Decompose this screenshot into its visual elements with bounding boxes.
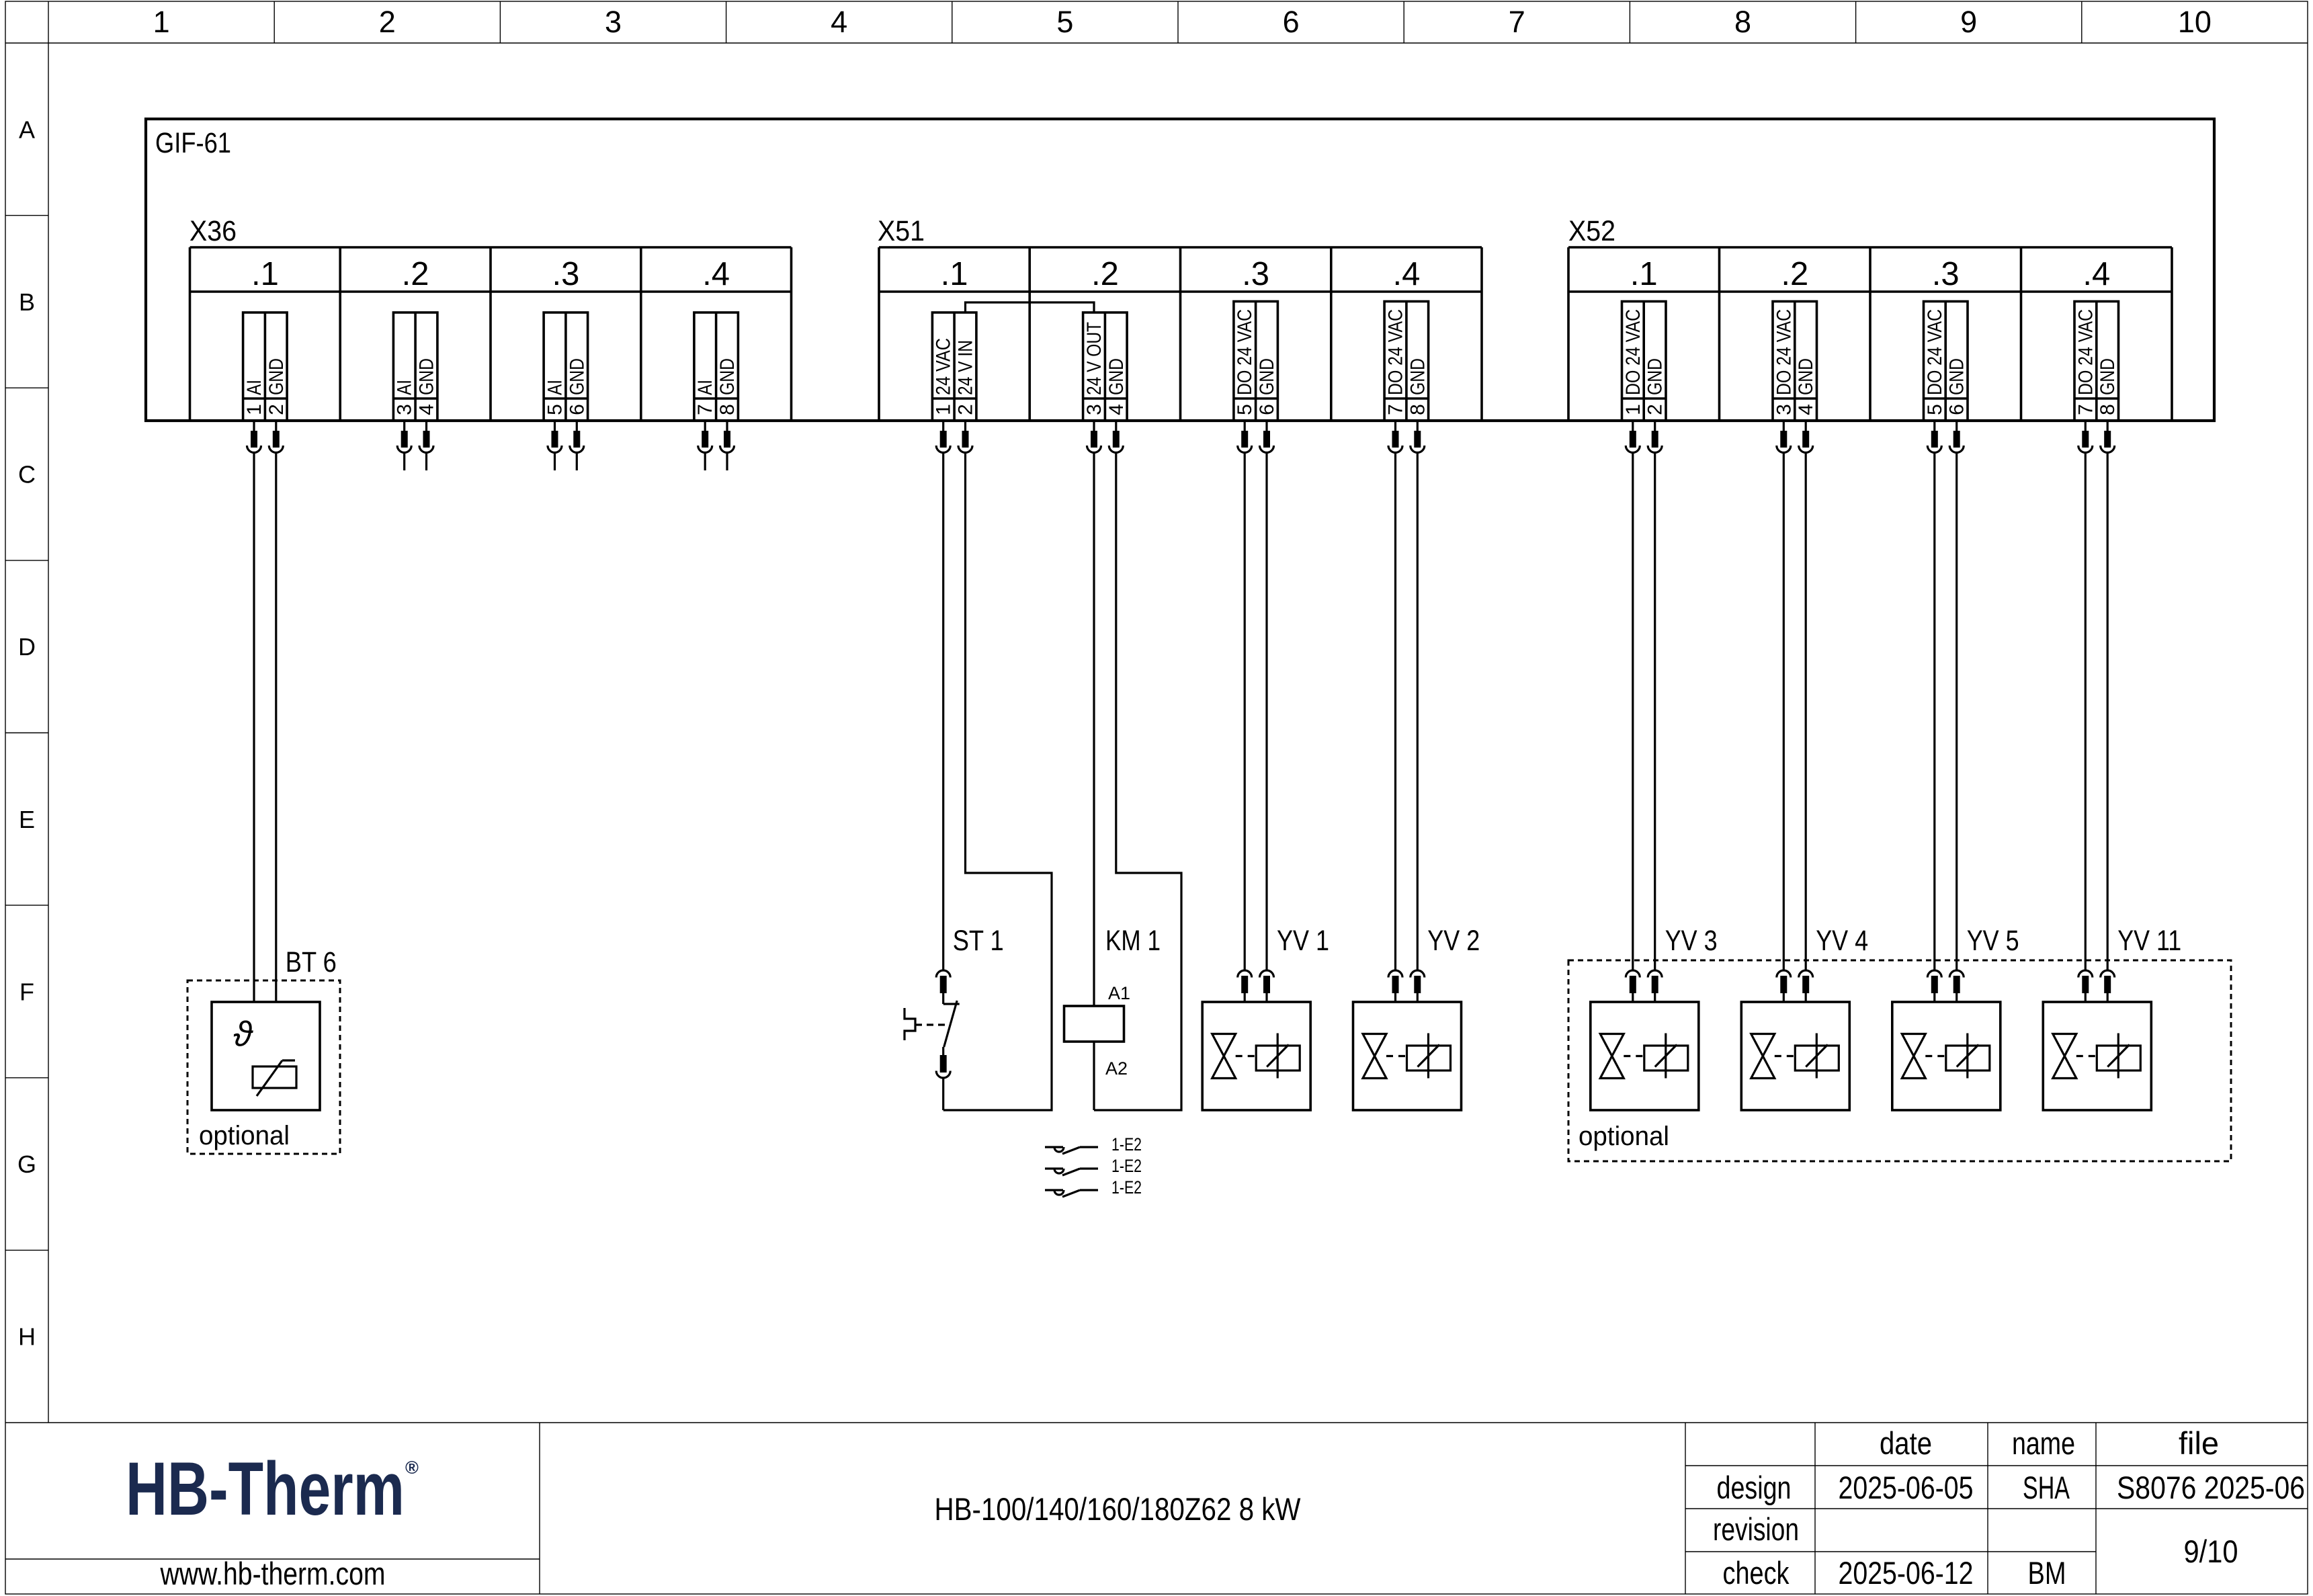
svg-text:file: file (2179, 1425, 2219, 1461)
svg-text:.3: .3 (1932, 256, 1960, 292)
svg-text:.1: .1 (251, 256, 279, 292)
svg-text:F: F (19, 978, 34, 1005)
svg-text:A: A (19, 116, 35, 143)
svg-text:YV 3: YV 3 (1665, 925, 1718, 957)
svg-text:SHA: SHA (2023, 1470, 2070, 1505)
svg-text:7: 7 (1385, 404, 1407, 415)
svg-text:ST 1: ST 1 (953, 925, 1004, 957)
svg-text:DO 24 VAC: DO 24 VAC (1385, 309, 1407, 395)
svg-text:GND: GND (566, 358, 588, 395)
svg-text:HB-Therm: HB-Therm (126, 1447, 405, 1531)
svg-text:GND: GND (1105, 358, 1128, 395)
svg-text:.2: .2 (402, 256, 429, 292)
svg-text:check: check (1723, 1555, 1790, 1591)
svg-text:.3: .3 (1242, 256, 1269, 292)
svg-text:optional: optional (1579, 1122, 1669, 1151)
svg-text:1-E2: 1-E2 (1111, 1177, 1142, 1198)
svg-text:1: 1 (933, 404, 955, 415)
svg-text:GND: GND (1795, 358, 1817, 395)
svg-text:H: H (18, 1323, 36, 1351)
svg-text:.1: .1 (1630, 256, 1658, 292)
svg-text:1: 1 (1622, 404, 1644, 415)
svg-text:DO 24 VAC: DO 24 VAC (1924, 309, 1946, 395)
svg-text:6: 6 (1256, 404, 1278, 415)
svg-text:4: 4 (1105, 404, 1128, 415)
svg-text:3: 3 (1773, 404, 1795, 415)
svg-text:YV 11: YV 11 (2117, 925, 2181, 957)
svg-text:.2: .2 (1781, 256, 1808, 292)
svg-text:GND: GND (1406, 358, 1429, 395)
svg-text:9: 9 (1960, 5, 1977, 39)
svg-text:.3: .3 (552, 256, 579, 292)
svg-text:YV 4: YV 4 (1816, 925, 1868, 957)
svg-text:ϑ: ϑ (233, 1015, 253, 1054)
svg-text:HB-100/140/160/180Z62 8 kW: HB-100/140/160/180Z62 8 kW (935, 1491, 1302, 1527)
svg-text:YV 1: YV 1 (1277, 925, 1329, 957)
svg-text:7: 7 (694, 404, 716, 415)
svg-text:®: ® (405, 1458, 419, 1478)
svg-text:B: B (19, 288, 35, 316)
svg-text:24 V OUT: 24 V OUT (1083, 322, 1105, 395)
svg-text:design: design (1717, 1470, 1792, 1505)
svg-text:8: 8 (1734, 5, 1751, 39)
svg-text:DO 24 VAC: DO 24 VAC (1234, 309, 1256, 395)
svg-text:2: 2 (955, 404, 977, 415)
svg-text:X36: X36 (190, 215, 237, 247)
svg-text:GND: GND (1256, 358, 1278, 395)
svg-text:24 V IN: 24 V IN (955, 340, 977, 395)
svg-text:9/10: 9/10 (2184, 1534, 2238, 1569)
svg-text:DO 24 VAC: DO 24 VAC (1773, 309, 1795, 395)
svg-text:1-E2: 1-E2 (1111, 1156, 1142, 1176)
svg-text:1: 1 (153, 5, 170, 39)
svg-text:AI: AI (544, 380, 566, 395)
svg-text:GND: GND (265, 358, 288, 395)
svg-text:3: 3 (394, 404, 416, 415)
svg-text:GND: GND (716, 358, 739, 395)
svg-text:8: 8 (1406, 404, 1429, 415)
svg-text:S8076 2025-06: S8076 2025-06 (2117, 1470, 2305, 1505)
svg-text:YV 2: YV 2 (1427, 925, 1480, 957)
svg-text:date: date (1880, 1425, 1932, 1461)
svg-text:3: 3 (605, 5, 622, 39)
svg-text:BM: BM (2028, 1555, 2066, 1591)
svg-text:5: 5 (544, 404, 566, 415)
svg-text:8: 8 (2097, 404, 2119, 415)
svg-text:X52: X52 (1568, 215, 1615, 247)
svg-text:AI: AI (694, 380, 716, 395)
svg-text:GND: GND (416, 358, 438, 395)
svg-text:GND: GND (1644, 358, 1667, 395)
svg-text:AI: AI (243, 380, 265, 395)
svg-text:AI: AI (394, 380, 416, 395)
svg-text:6: 6 (566, 404, 588, 415)
svg-text:C: C (18, 461, 36, 489)
svg-text:GIF-61: GIF-61 (155, 127, 231, 159)
svg-text:.4: .4 (702, 256, 730, 292)
svg-text:2: 2 (265, 404, 288, 415)
svg-text:1: 1 (243, 404, 265, 415)
svg-text:5: 5 (1234, 404, 1256, 415)
svg-text:2: 2 (379, 5, 396, 39)
svg-text:10: 10 (2178, 5, 2212, 39)
svg-text:2025-06-05: 2025-06-05 (1839, 1470, 1974, 1505)
svg-text:2025-06-12: 2025-06-12 (1839, 1555, 1974, 1591)
svg-text:5: 5 (1056, 5, 1073, 39)
svg-text:24 VAC: 24 VAC (933, 338, 955, 395)
svg-text:.4: .4 (1392, 256, 1420, 292)
svg-text:.4: .4 (2083, 256, 2110, 292)
svg-text:A1: A1 (1108, 983, 1130, 1003)
svg-text:4: 4 (1795, 404, 1817, 415)
svg-text:KM 1: KM 1 (1105, 925, 1161, 957)
svg-text:YV 5: YV 5 (1967, 925, 2019, 957)
svg-text:X51: X51 (878, 215, 925, 247)
svg-text:DO 24 VAC: DO 24 VAC (2074, 309, 2097, 395)
svg-text:6: 6 (1283, 5, 1300, 39)
svg-text:.1: .1 (941, 256, 968, 292)
svg-text:5: 5 (1924, 404, 1946, 415)
svg-text:DO 24 VAC: DO 24 VAC (1622, 309, 1644, 395)
svg-text:6: 6 (1946, 404, 1968, 415)
svg-text:G: G (17, 1150, 36, 1178)
svg-text:3: 3 (1083, 404, 1105, 415)
svg-text:7: 7 (2074, 404, 2097, 415)
svg-text:A2: A2 (1105, 1058, 1128, 1079)
svg-text:E: E (19, 806, 35, 833)
svg-text:4: 4 (831, 5, 847, 39)
svg-text:BT 6: BT 6 (286, 946, 337, 978)
svg-text:.2: .2 (1091, 256, 1119, 292)
svg-text:GND: GND (1946, 358, 1968, 395)
svg-text:www.hb-therm.com: www.hb-therm.com (160, 1556, 386, 1591)
svg-text:7: 7 (1509, 5, 1525, 39)
svg-text:name: name (2012, 1425, 2075, 1461)
svg-text:revision: revision (1713, 1511, 1799, 1547)
svg-text:2: 2 (1644, 404, 1667, 415)
svg-text:GND: GND (2097, 358, 2119, 395)
svg-text:8: 8 (716, 404, 739, 415)
svg-text:1-E2: 1-E2 (1111, 1134, 1142, 1154)
svg-text:optional: optional (199, 1121, 290, 1150)
svg-text:D: D (18, 633, 36, 661)
svg-text:4: 4 (416, 404, 438, 415)
